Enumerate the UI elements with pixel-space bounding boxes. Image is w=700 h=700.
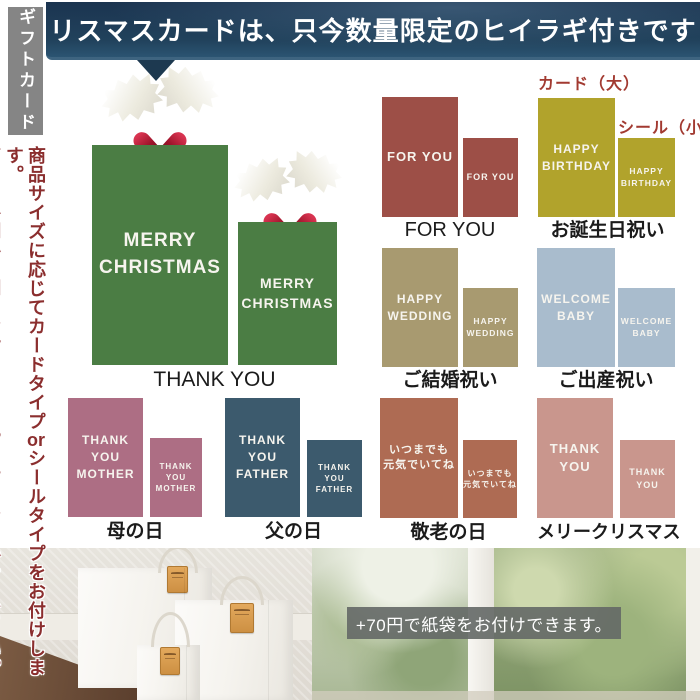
card-text: MOTHER	[77, 466, 135, 483]
card-large: FOR YOU	[382, 97, 458, 217]
bag-tag	[160, 647, 180, 675]
card-small: THANK YOU FATHER	[307, 440, 362, 517]
card-group-keirou: いつまでも 元気でいてね いつまでも 元気でいてね 敬老の日	[380, 398, 517, 544]
photo-window-frame	[686, 548, 700, 700]
card-large: HAPPY WEDDING	[382, 248, 458, 367]
note1-or: or	[26, 431, 46, 449]
card-text: WELCOME	[621, 316, 672, 328]
annotation-card-large: カード（大）	[538, 70, 640, 94]
holly-decoration	[100, 68, 220, 150]
card-text: MERRY	[124, 228, 197, 255]
card-large: MERRY CHRISTMAS	[92, 145, 228, 365]
card-small: THANK YOU	[620, 440, 675, 518]
photo-window-sill	[312, 691, 700, 700]
card-group-father: THANK YOU FATHER THANK YOU FATHER 父の日	[225, 398, 362, 543]
card-group-birthday: カード（大） HAPPY BIRTHDAY シール（小） HAPPY BIRTH…	[538, 70, 677, 242]
card-text: BIRTHDAY	[542, 158, 611, 175]
promo-image: クリスマスカードは、只今数量限定のヒイラギ付きです！ ギフトカード 商品サイズに…	[0, 0, 700, 700]
gift-card-tab: ギフトカード	[8, 7, 43, 135]
gift-card-tab-label: ギフトカード	[13, 8, 38, 134]
card-text: いつまでも	[468, 468, 513, 479]
card-text: HAPPY	[397, 291, 443, 308]
group-label: FOR YOU	[382, 219, 518, 242]
card-large: THANK YOU MOTHER	[68, 398, 143, 517]
card-text: BIRTHDAY	[621, 178, 672, 190]
group-label: 父の日	[225, 516, 362, 543]
bag-tag	[167, 566, 188, 593]
paper-bag-photo: +70円で紙袋をお付けできます。	[0, 548, 700, 700]
card-text: HAPPY	[473, 316, 507, 328]
holly-leaf-icon	[283, 147, 347, 200]
holly-decoration	[233, 152, 343, 228]
card-text: BABY	[557, 308, 595, 325]
card-text: THANK YOU	[225, 432, 300, 466]
card-large: THANK YOU	[537, 398, 613, 518]
sidebar-note-line1: 商品サイズに応じてカードタイプorシールタイプをお付けします。	[3, 146, 47, 700]
paper-bag-caption-text: +70円で紙袋をお付けできます。	[356, 611, 612, 636]
card-text: MERRY	[260, 274, 315, 294]
banner-text: クリスマスカードは、只今数量限定のヒイラギ付きです！	[22, 11, 700, 48]
group-label: ご結婚祝い	[382, 365, 518, 392]
paper-bag-caption: +70円で紙袋をお付けできます。	[347, 607, 621, 639]
card-large: WELCOME BABY	[537, 248, 615, 367]
group-label: お誕生日祝い	[538, 215, 677, 242]
group-label: THANK YOU	[92, 368, 337, 392]
card-text: WEDDING	[466, 328, 514, 340]
card-group-baby: WELCOME BABY WELCOME BABY ご出産祝い	[537, 248, 675, 392]
card-large: HAPPY BIRTHDAY	[538, 98, 615, 217]
card-small: いつまでも 元気でいてね	[463, 440, 517, 518]
card-text: 元気でいてね	[463, 479, 517, 490]
card-text: HAPPY	[553, 141, 599, 158]
card-text: いつまでも	[389, 443, 449, 458]
card-group-wedding: HAPPY WEDDING HAPPY WEDDING ご結婚祝い	[382, 248, 518, 392]
paper-bag-small	[137, 645, 200, 700]
card-small: THANK YOU MOTHER	[150, 438, 202, 517]
group-label: 母の日	[68, 516, 202, 543]
card-large: THANK YOU FATHER	[225, 398, 300, 517]
group-label: ご出産祝い	[537, 365, 675, 392]
card-text: THANK YOU	[620, 466, 675, 491]
card-group-mother: THANK YOU MOTHER THANK YOU MOTHER 母の日	[68, 398, 202, 543]
holly-leaf-icon	[154, 62, 224, 120]
card-large: いつまでも 元気でいてね	[380, 398, 458, 518]
note1-pre: 商品サイズに応じてカードタイプ	[26, 146, 46, 431]
card-text: WELCOME	[541, 291, 611, 308]
card-group-merry-christmas: THANK YOU THANK YOU メリークリスマス	[537, 398, 675, 544]
card-small: WELCOME BABY	[618, 288, 675, 367]
card-text: THANK YOU	[537, 440, 613, 476]
card-small: HAPPY WEDDING	[463, 288, 518, 367]
card-group-thankyou-holiday: MERRY CHRISTMAS MERRY CHRISTMAS THANK YO…	[92, 60, 337, 392]
card-text: CHRISTMAS	[241, 294, 333, 314]
card-text: FATHER	[236, 466, 289, 483]
card-small: MERRY CHRISTMAS	[238, 222, 337, 365]
card-group-foryou: FOR YOU FOR YOU FOR YOU	[382, 97, 518, 242]
card-text: THANK YOU	[68, 432, 143, 466]
card-text: FOR YOU	[387, 148, 453, 166]
card-text: FATHER	[316, 484, 353, 495]
group-label: 敬老の日	[380, 517, 517, 544]
card-text: FOR YOU	[467, 171, 515, 184]
card-text: BABY	[632, 328, 660, 340]
card-text: MOTHER	[156, 483, 197, 494]
card-small: FOR YOU	[463, 138, 518, 217]
card-text: THANK YOU	[150, 461, 202, 483]
group-label: メリークリスマス	[537, 518, 675, 544]
card-text: HAPPY	[629, 166, 663, 178]
top-banner: クリスマスカードは、只今数量限定のヒイラギ付きです！	[46, 2, 700, 60]
card-text: CHRISTMAS	[99, 255, 221, 282]
card-text: THANK YOU	[307, 462, 362, 484]
annotation-seal-small: シール（小）	[618, 114, 700, 138]
bag-tag	[230, 603, 254, 633]
card-text: WEDDING	[388, 308, 453, 325]
card-small: HAPPY BIRTHDAY	[618, 138, 675, 217]
sidebar-note-line2: 商品の外側か内側にお付けします。当店におまかせください。	[0, 146, 2, 700]
card-text: 元気でいてね	[383, 458, 455, 473]
sidebar-note: 商品サイズに応じてカードタイプorシールタイプをお付けします。 商品の外側か内側…	[0, 146, 48, 700]
